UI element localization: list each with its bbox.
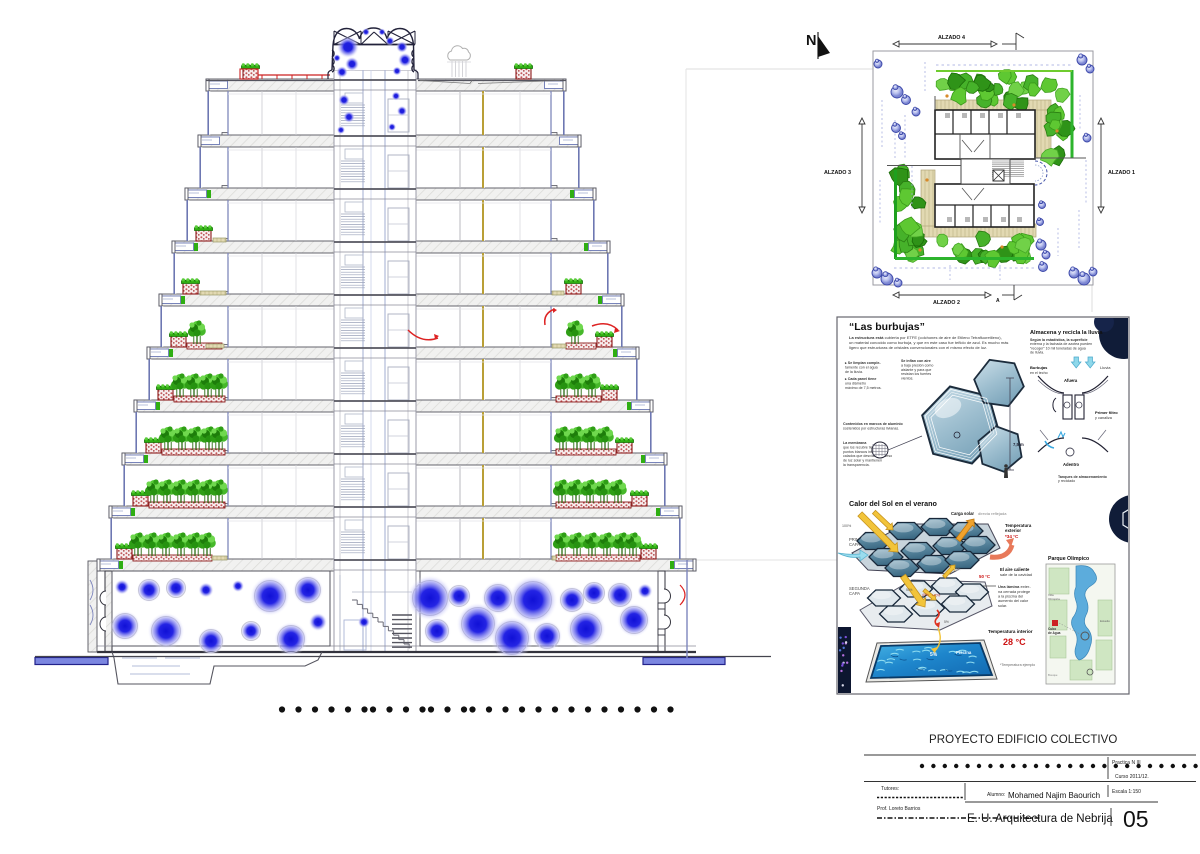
svg-text:Prof. Loreto Barrios: Prof. Loreto Barrios bbox=[877, 806, 921, 812]
svg-text:la transparencia.: la transparencia. bbox=[843, 463, 870, 467]
svg-text:▸ Se limpian comple-: ▸ Se limpian comple- bbox=[844, 361, 881, 365]
svg-text:Olímpica: Olímpica bbox=[1048, 597, 1060, 601]
svg-text:ALZADO 4: ALZADO 4 bbox=[938, 35, 965, 41]
svg-text:Adentro: Adentro bbox=[1063, 462, 1079, 467]
svg-text:solar.: solar. bbox=[998, 604, 1007, 608]
svg-text:de Agua: de Agua bbox=[1048, 631, 1061, 635]
svg-text:Temperatura interior: Temperatura interior bbox=[988, 629, 1033, 634]
svg-text:100%: 100% bbox=[842, 524, 852, 528]
svg-text:Estadio: Estadio bbox=[1100, 619, 1110, 623]
svg-text:50%: 50% bbox=[906, 588, 913, 592]
svg-text:50%: 50% bbox=[954, 568, 961, 572]
svg-text:28 °C: 28 °C bbox=[1003, 637, 1026, 647]
svg-text:aumento del calor: aumento del calor bbox=[998, 599, 1029, 603]
svg-text:40%: 40% bbox=[922, 593, 929, 597]
svg-text:Se inflan con aire: Se inflan con aire bbox=[901, 359, 931, 363]
svg-text:5%: 5% bbox=[944, 620, 949, 624]
svg-text:▸ Cada panel tiene: ▸ Cada panel tiene bbox=[844, 377, 876, 381]
svg-text:PROYECTO EDIFICIO COLECTIVO: PROYECTO EDIFICIO COLECTIVO bbox=[929, 734, 1117, 746]
svg-text:ligero que estructuras de cris: ligero que estructuras de cristales conv… bbox=[849, 345, 987, 350]
svg-text:sostenidos por estructuras liv: sostenidos por estructuras livianas. bbox=[843, 426, 899, 430]
svg-text:Una lámina exter-: Una lámina exter- bbox=[998, 584, 1031, 589]
svg-text:N: N bbox=[806, 33, 816, 49]
svg-text:*Temperatura ejemplo: *Temperatura ejemplo bbox=[1000, 663, 1035, 667]
svg-text:Afuera: Afuera bbox=[1064, 378, 1078, 383]
svg-text:Carga solar: Carga solar bbox=[951, 511, 974, 516]
svg-text:E. U. Arquitectura de Nebrija: E. U. Arquitectura de Nebrija bbox=[967, 813, 1113, 825]
svg-text:y canaliza: y canaliza bbox=[1095, 416, 1113, 420]
svg-text:Escala 1:150: Escala 1:150 bbox=[1112, 789, 1141, 795]
svg-text:que los recubre tiene: que los recubre tiene bbox=[843, 445, 877, 449]
svg-text:directa reflejada: directa reflejada bbox=[978, 511, 1007, 516]
svg-text:en el techo: en el techo bbox=[1030, 371, 1048, 375]
svg-text:Almacena y recicla la lluvia: Almacena y recicla la lluvia bbox=[1030, 330, 1103, 336]
svg-text:05: 05 bbox=[1123, 806, 1149, 832]
svg-text:de luz solar y mantienen: de luz solar y mantienen bbox=[843, 459, 882, 463]
svg-text:A: A bbox=[996, 298, 1000, 304]
svg-text:ALZADO 2: ALZADO 2 bbox=[933, 300, 960, 306]
svg-text:Mohamed Najim Baourich: Mohamed Najim Baourich bbox=[1008, 791, 1100, 800]
svg-text:Piscina: Piscina bbox=[956, 650, 972, 655]
svg-text:aislante y para que: aislante y para que bbox=[901, 368, 931, 372]
svg-text:Alumno:: Alumno: bbox=[987, 792, 1005, 798]
svg-text:máximo de 7,5 metros.: máximo de 7,5 metros. bbox=[845, 386, 882, 390]
svg-text:Curso 2011/12.: Curso 2011/12. bbox=[1115, 774, 1149, 780]
svg-text:Burbujas: Burbujas bbox=[1030, 365, 1048, 370]
svg-text:resistan los fuertes: resistan los fuertes bbox=[901, 372, 931, 376]
svg-text:na cerrada protege: na cerrada protege bbox=[998, 590, 1030, 594]
svg-text:de lluvia.: de lluvia. bbox=[1030, 351, 1044, 355]
svg-text:CAPA: CAPA bbox=[849, 591, 860, 596]
svg-text:Tutores:: Tutores: bbox=[881, 786, 899, 792]
svg-text:5%: 5% bbox=[930, 652, 938, 658]
svg-text:a baja presión como: a baja presión como bbox=[901, 363, 933, 367]
svg-text:de la lluvia.: de la lluvia. bbox=[845, 370, 863, 374]
svg-text:vientos.: vientos. bbox=[901, 377, 913, 381]
svg-text:“Las burbujas”: “Las burbujas” bbox=[849, 321, 925, 333]
svg-text:ALZADO 1: ALZADO 1 bbox=[1108, 170, 1135, 176]
svg-text:Contenidos en marcos de alumin: Contenidos en marcos de aluminio bbox=[843, 422, 904, 426]
svg-text:50 °C: 50 °C bbox=[979, 574, 991, 579]
svg-text:Parque Olímpico: Parque Olímpico bbox=[1048, 556, 1089, 562]
svg-text:Lluvia: Lluvia bbox=[1100, 365, 1111, 370]
svg-text:Practica N III: Practica N III bbox=[1112, 760, 1141, 766]
svg-text:La membrana: La membrana bbox=[843, 441, 867, 445]
svg-text:7,5 m: 7,5 m bbox=[1013, 442, 1024, 447]
svg-text:Bosque: Bosque bbox=[1048, 673, 1058, 677]
svg-text:una diámetro: una diámetro bbox=[845, 381, 866, 385]
svg-text:y reciclado: y reciclado bbox=[1058, 479, 1075, 483]
svg-text:ALZADO 3: ALZADO 3 bbox=[824, 170, 851, 176]
svg-text:*34 °C: *34 °C bbox=[1005, 534, 1019, 539]
svg-text:a la piscina del: a la piscina del bbox=[998, 595, 1023, 599]
svg-text:Primer filtro: Primer filtro bbox=[1095, 410, 1118, 415]
svg-text:tamente con el agua: tamente con el agua bbox=[845, 365, 878, 369]
svg-text:Calor del Sol en el verano: Calor del Sol en el verano bbox=[849, 499, 937, 508]
svg-text:+70%: +70% bbox=[932, 594, 940, 598]
svg-text:sale de la cavidad: sale de la cavidad bbox=[1000, 572, 1032, 577]
svg-text:exterior: exterior bbox=[1005, 528, 1021, 533]
